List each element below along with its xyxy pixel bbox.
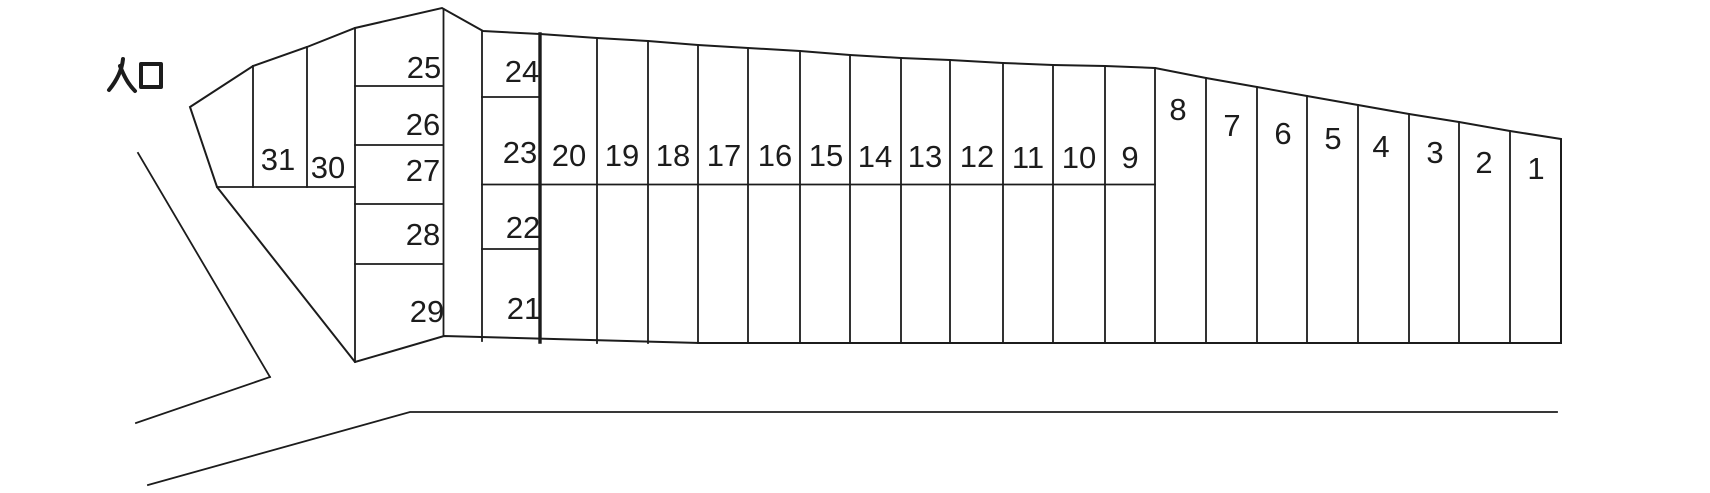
stall-labels: 1 2 3 4 5 6 7 8 9 10 11 12 13 14 15 16 1… (261, 50, 1545, 329)
parking-lot-diagram: 1 2 3 4 5 6 7 8 9 10 11 12 13 14 15 16 1… (0, 0, 1710, 493)
parking-lot-svg: 1 2 3 4 5 6 7 8 9 10 11 12 13 14 15 16 1… (0, 0, 1710, 493)
stall-label-12: 12 (960, 139, 994, 174)
stall-label-15: 15 (809, 138, 843, 173)
stall-label-1: 1 (1527, 151, 1544, 186)
stall-label-19: 19 (605, 138, 639, 173)
stall-label-29: 29 (410, 294, 444, 329)
side-road-upper-edge (136, 377, 270, 423)
stall-label-8: 8 (1169, 92, 1186, 127)
entrance-label (109, 59, 161, 91)
stall-label-7: 7 (1223, 108, 1240, 143)
bottom-road-edge (148, 412, 1557, 485)
stall-label-31: 31 (261, 142, 295, 177)
road-lines (136, 153, 1557, 485)
stall-label-11: 11 (1012, 140, 1044, 175)
stall-label-25: 25 (407, 50, 441, 85)
stall-label-27: 27 (406, 153, 440, 188)
stall-label-16: 16 (758, 138, 792, 173)
stall-label-26: 26 (406, 107, 440, 142)
stall-label-22: 22 (506, 210, 540, 245)
stall-label-23: 23 (503, 135, 537, 170)
stall-label-4: 4 (1372, 129, 1389, 164)
stall-label-10: 10 (1062, 140, 1096, 175)
entrance-glyph-iru-left (109, 59, 123, 90)
stall-label-30: 30 (311, 150, 345, 185)
stall-label-13: 13 (908, 139, 942, 174)
stall-label-28: 28 (406, 217, 440, 252)
stall-label-3: 3 (1426, 135, 1443, 170)
stall-label-21: 21 (507, 291, 541, 326)
stall-label-9: 9 (1121, 140, 1138, 175)
stall-label-2: 2 (1475, 145, 1492, 180)
stall-label-6: 6 (1274, 116, 1291, 151)
stall-label-17: 17 (707, 138, 741, 173)
stall-label-14: 14 (858, 139, 892, 174)
entrance-glyph-kuchi (141, 64, 161, 87)
stall-label-18: 18 (656, 138, 690, 173)
stall-label-5: 5 (1324, 121, 1341, 156)
stall-label-24: 24 (505, 54, 539, 89)
stall-label-20: 20 (552, 138, 586, 173)
entrance-glyph-iru-right (120, 66, 135, 91)
